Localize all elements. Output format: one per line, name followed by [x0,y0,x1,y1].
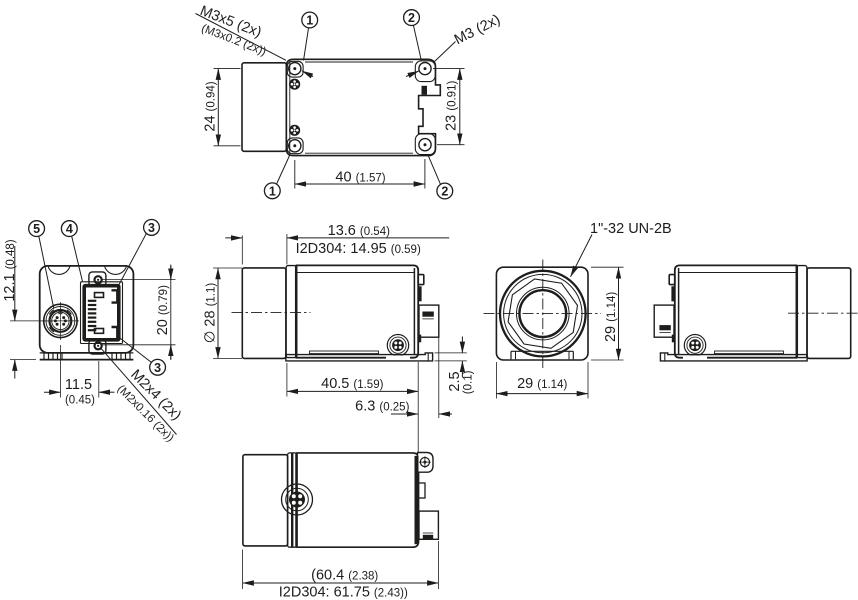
svg-text:20 (0.79): 20 (0.79) [155,285,171,335]
svg-text:23 (0.91): 23 (0.91) [444,81,460,131]
svg-text:40.5 (1.59): 40.5 (1.59) [321,376,383,392]
svg-text:1"-32 UN-2B: 1"-32 UN-2B [590,221,672,237]
svg-text:13.6 (0.54): 13.6 (0.54) [328,223,390,239]
svg-text:29 (1.14): 29 (1.14) [517,376,567,392]
svg-text:3: 3 [148,221,155,235]
svg-text:(0.1): (0.1) [463,370,475,394]
svg-text:29 (1.14): 29 (1.14) [603,292,619,342]
svg-text:2: 2 [441,185,448,199]
svg-text:(0.45): (0.45) [65,395,95,407]
svg-text:2: 2 [408,11,415,25]
svg-text:4: 4 [66,222,73,236]
svg-text:1: 1 [306,14,313,28]
svg-text:12.1 (0.48): 12.1 (0.48) [2,239,18,301]
svg-text:5: 5 [33,222,40,236]
svg-text:∅ 28 (1.1): ∅ 28 (1.1) [203,283,219,344]
svg-text:1: 1 [269,184,276,198]
svg-text:3: 3 [154,361,161,375]
svg-text:11.5: 11.5 [65,377,92,393]
svg-text:I2D304: 14.95 (0.59): I2D304: 14.95 (0.59) [296,241,421,257]
svg-text:6.3 (0.25): 6.3 (0.25) [355,399,409,415]
svg-text:24 (0.94): 24 (0.94) [203,81,219,131]
svg-text:2.5: 2.5 [447,371,463,391]
svg-text:I2D304: 61.75 (2.43)): I2D304: 61.75 (2.43)) [279,585,408,600]
svg-text:40 (1.57): 40 (1.57) [335,170,385,186]
svg-text:(60.4 (2.38): (60.4 (2.38) [311,567,378,583]
